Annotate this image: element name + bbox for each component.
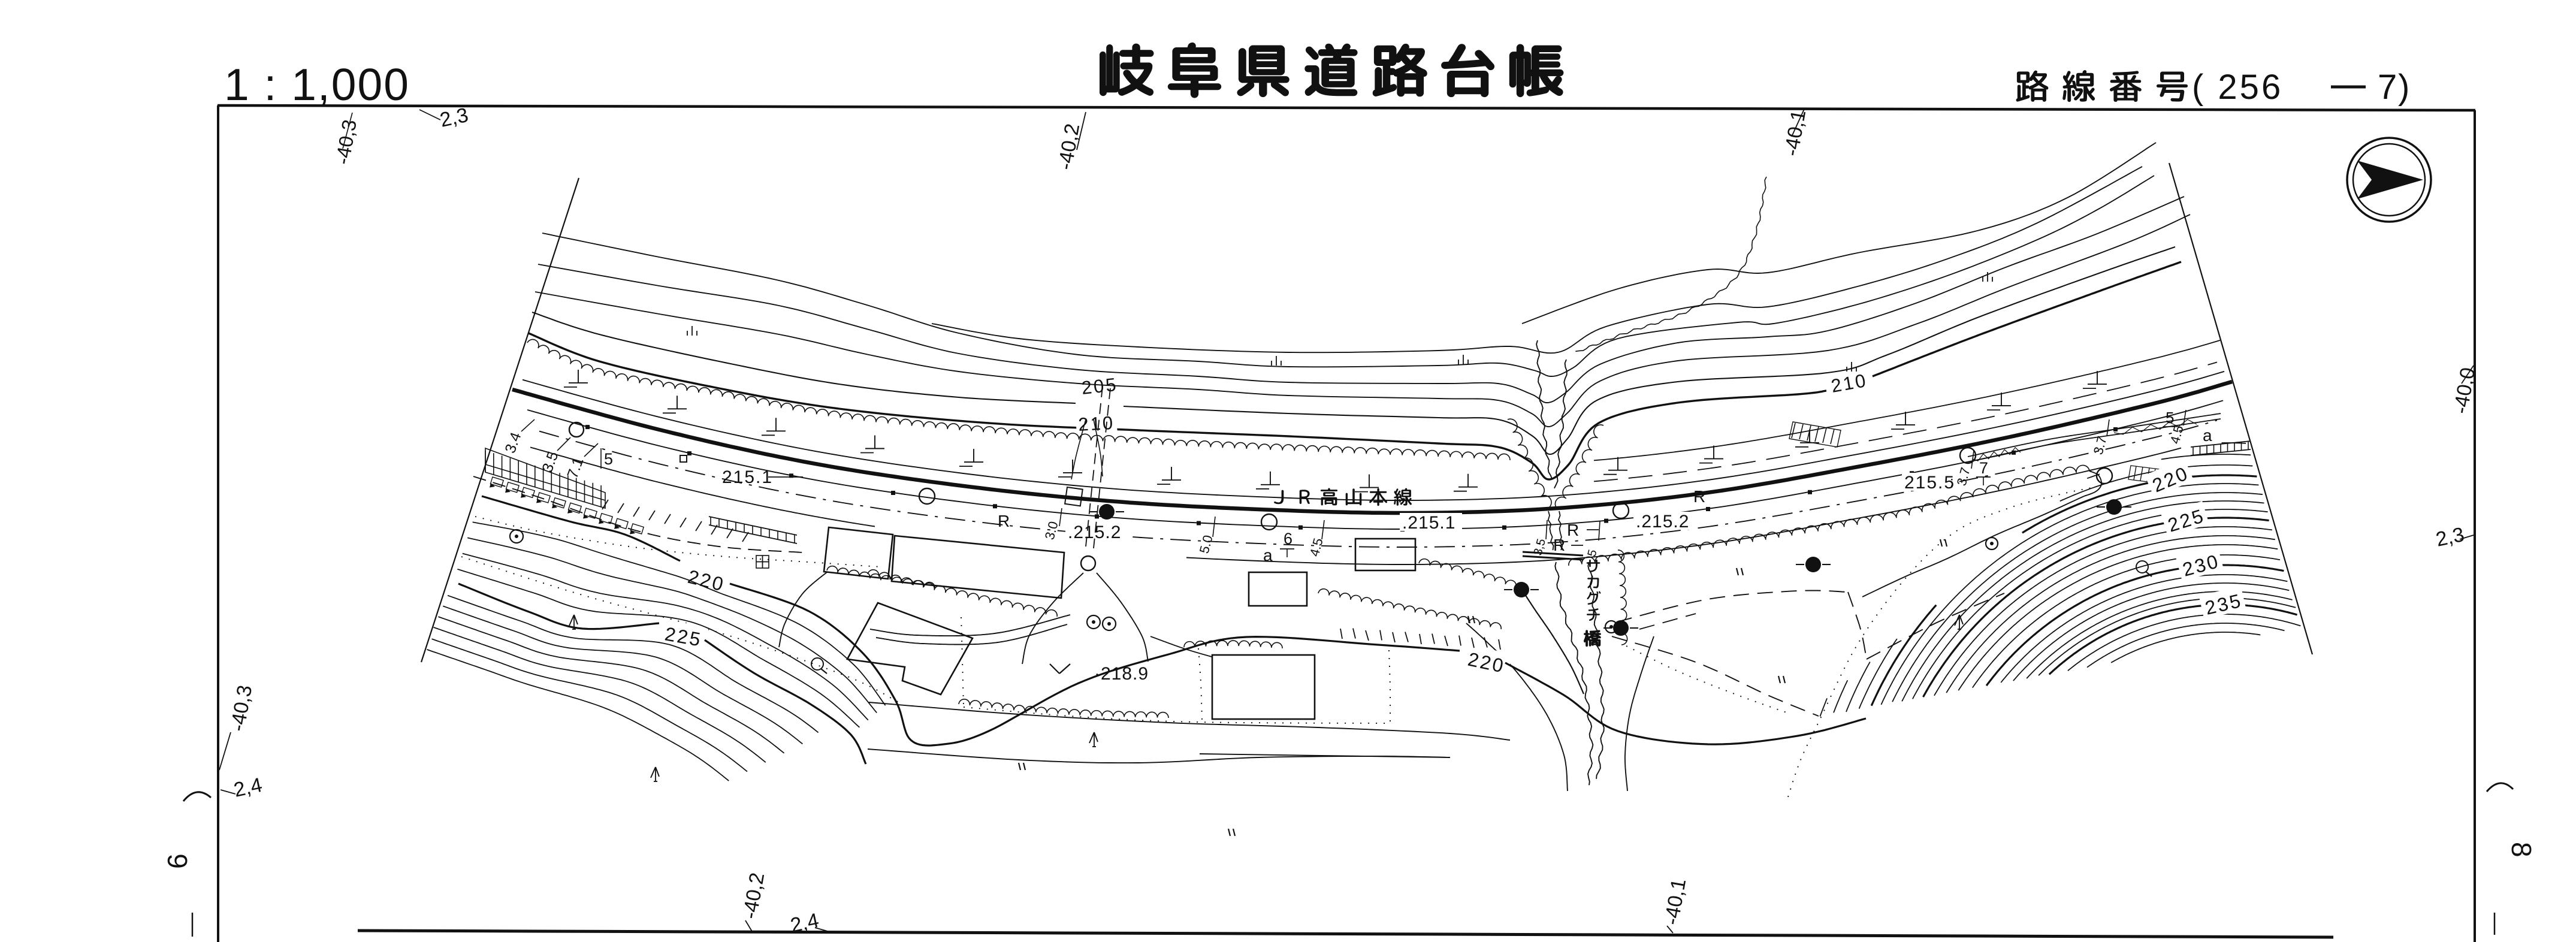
svg-text:8: 8 — [2506, 842, 2537, 858]
svg-text:7: 7 — [2378, 68, 2397, 107]
svg-text:215.5: 215.5 — [1904, 473, 1955, 493]
svg-text:.215.1: .215.1 — [1402, 513, 1455, 533]
svg-text:R: R — [1693, 487, 1705, 506]
svg-text::: : — [1950, 474, 1954, 490]
svg-text:a: a — [2203, 426, 2212, 445]
svg-text:6: 6 — [162, 853, 193, 869]
svg-text:215.1: 215.1 — [722, 467, 773, 487]
svg-text:( 256: ( 256 — [2192, 68, 2283, 107]
svg-text:5: 5 — [2166, 409, 2174, 427]
svg-text:.215.2: .215.2 — [1636, 512, 1689, 532]
svg-text:7: 7 — [1979, 459, 1988, 477]
svg-text:a: a — [1263, 546, 1273, 564]
svg-text:): ) — [2398, 68, 2409, 107]
svg-text:1 : 1,000: 1 : 1,000 — [224, 59, 410, 110]
svg-text:5: 5 — [604, 450, 613, 468]
svg-text:R: R — [998, 512, 1010, 530]
svg-text:R: R — [1567, 521, 1579, 539]
svg-text:6: 6 — [1284, 530, 1292, 548]
svg-text:R: R — [1553, 536, 1565, 554]
